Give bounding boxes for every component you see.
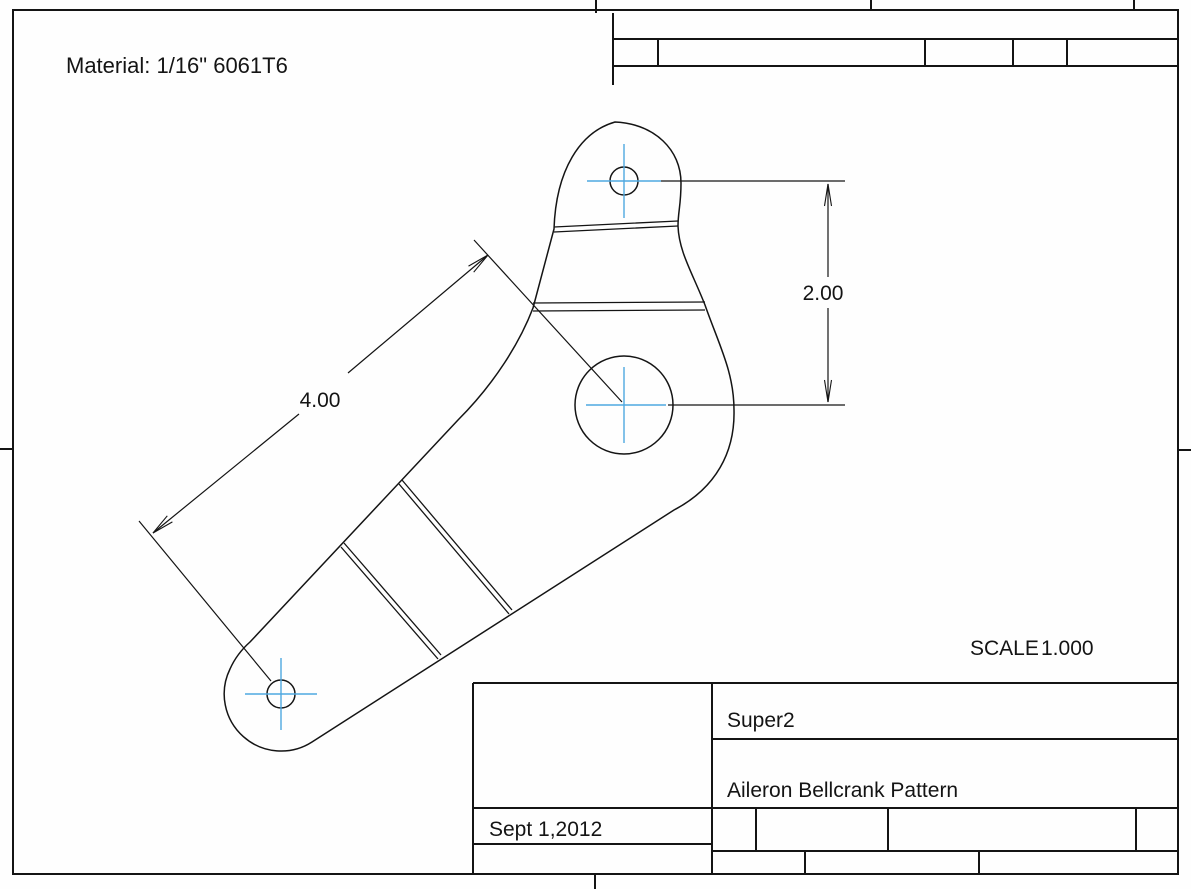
dimension-diagonal-extension-lines (139, 240, 622, 681)
part-outline (224, 122, 734, 751)
bend-lines (341, 221, 705, 659)
revision-table-lines (613, 13, 1178, 85)
title-block-project: Super2 (727, 709, 795, 732)
revision-table (613, 13, 1178, 85)
material-note: Material: 1/16" 6061T6 (66, 53, 288, 78)
centerline-cross-top (587, 144, 661, 218)
part-view (224, 122, 734, 751)
title-block: Super2 Aileron Bellcrank Pattern Sept 1,… (473, 683, 1178, 874)
scale-label: SCALE (970, 637, 1039, 660)
scale-value: 1.000 (1041, 637, 1094, 660)
centerline-cross-center (586, 367, 666, 443)
dimension-vertical-value: 2.00 (803, 282, 844, 305)
title-block-date: Sept 1,2012 (489, 818, 602, 841)
dimension-vertical: 2.00 (661, 181, 845, 405)
sheet-border (13, 10, 1178, 874)
title-block-drawing-title: Aileron Bellcrank Pattern (727, 779, 958, 802)
drawing-canvas: 2.00 4.00 Material: 1/16" 6061T6 SCALE 1… (0, 0, 1191, 889)
drawing-sheet: 2.00 4.00 Material: 1/16" 6061T6 SCALE 1… (0, 0, 1191, 889)
dimension-diagonal-value: 4.00 (300, 389, 341, 412)
centerline-cross-bottom (245, 658, 317, 730)
scale-note: SCALE 1.000 (970, 637, 1094, 660)
dimension-diagonal: 4.00 (139, 240, 622, 681)
